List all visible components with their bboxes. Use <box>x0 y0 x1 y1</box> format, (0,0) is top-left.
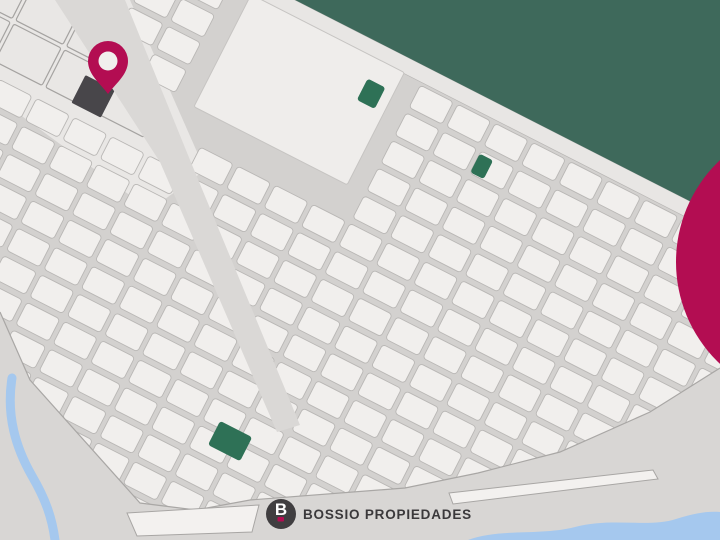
pin-hole <box>99 52 118 71</box>
brand-name: BOSSIO PROPIEDADES <box>303 507 472 522</box>
map-widget: B BOSSIO PROPIEDADES <box>0 0 720 540</box>
brand-logo-dot <box>278 517 285 522</box>
map-canvas: B BOSSIO PROPIEDADES <box>0 0 720 540</box>
brand-logo-letter: B <box>275 500 287 519</box>
brand-logo: B <box>266 499 296 529</box>
